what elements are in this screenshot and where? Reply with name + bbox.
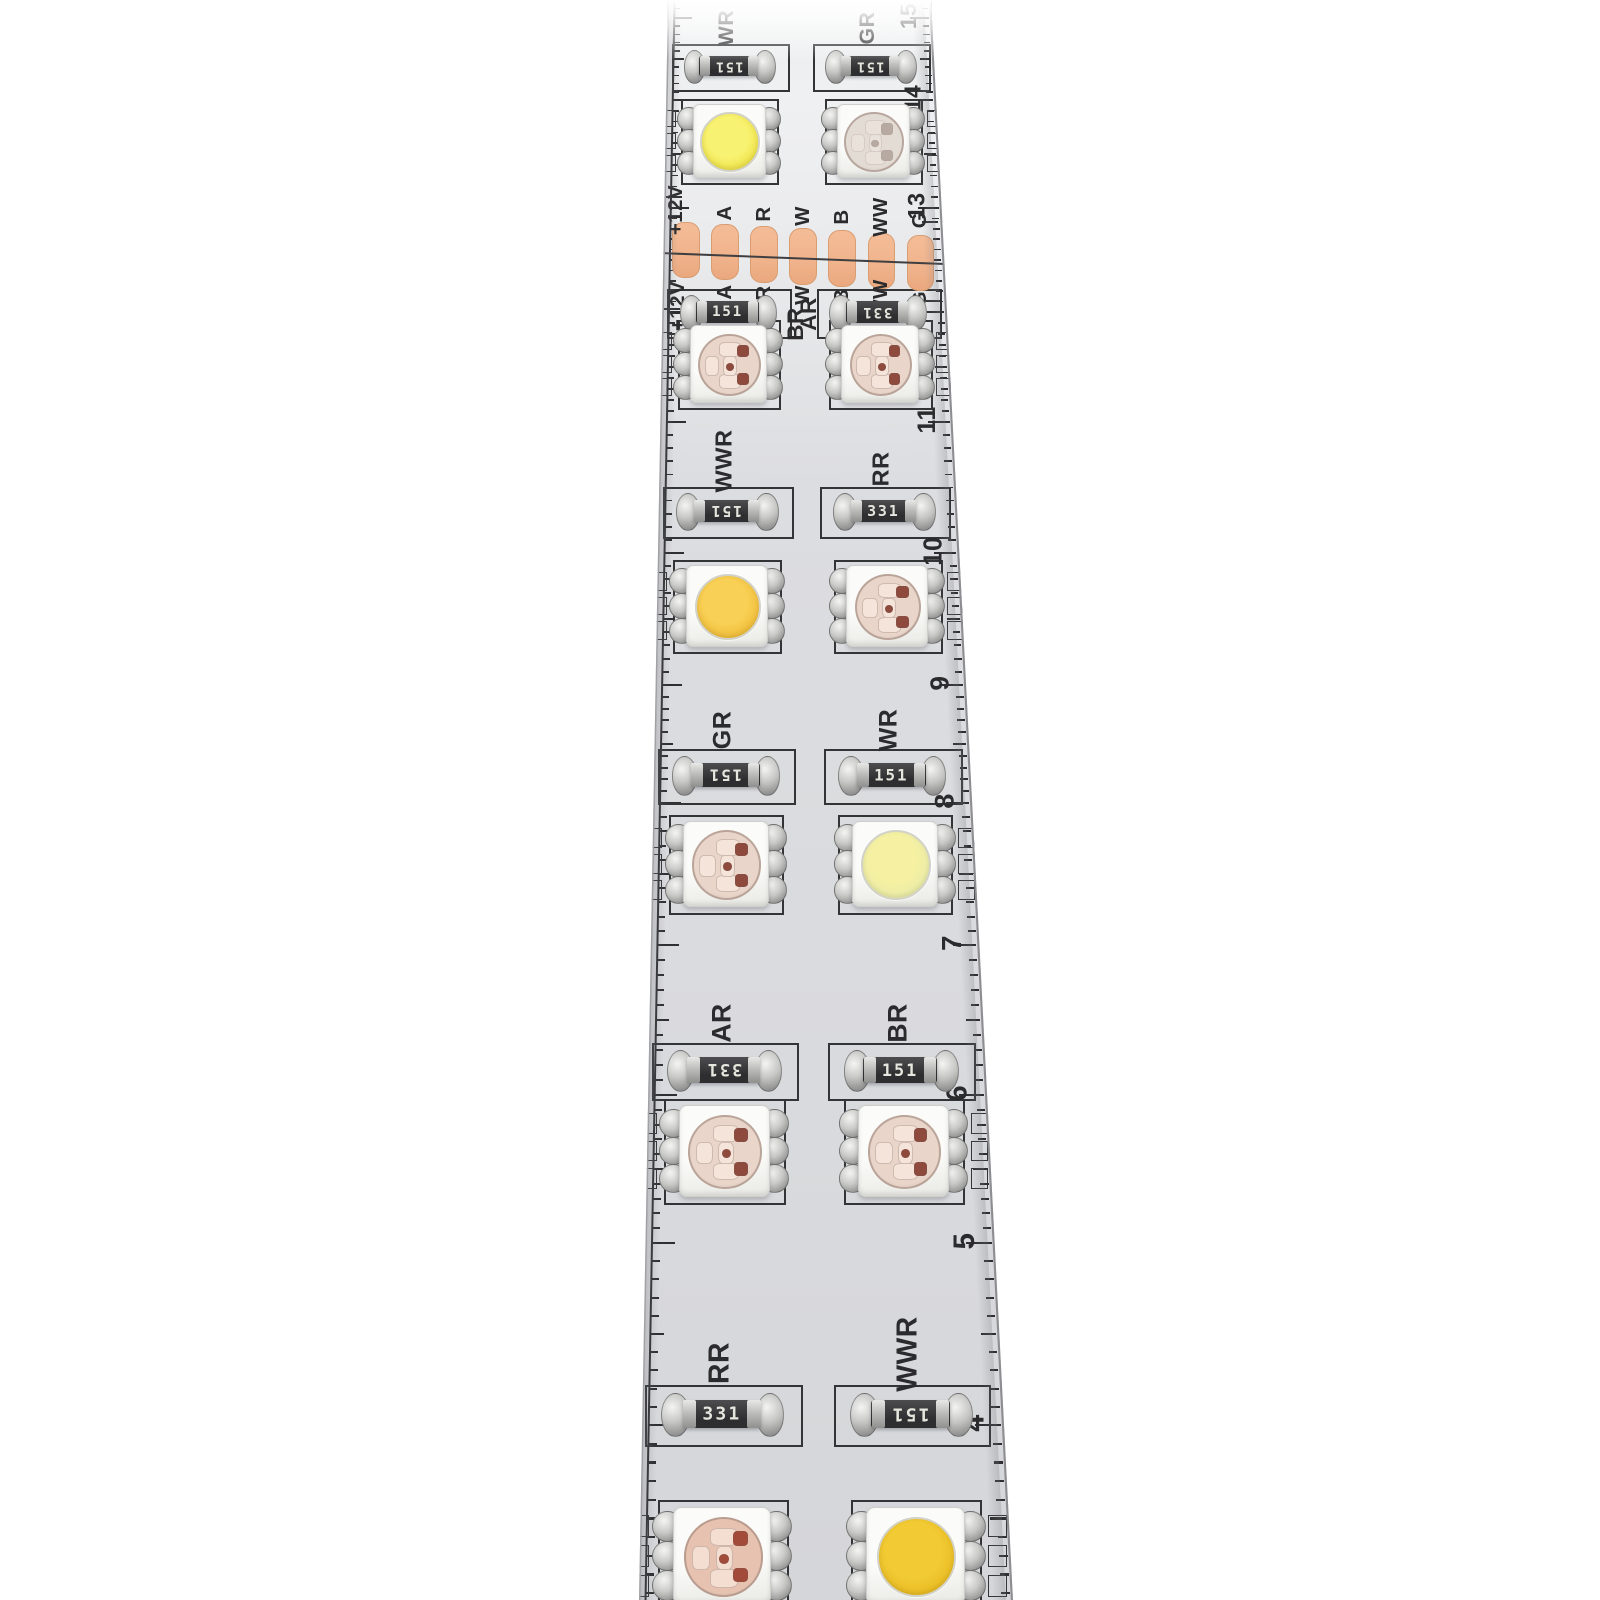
led-lens-clear bbox=[850, 334, 913, 397]
resistor-label: WWR bbox=[892, 1316, 925, 1392]
led-lens-clear bbox=[844, 112, 904, 172]
led-chip-pattern bbox=[700, 336, 759, 395]
resistor-end-cap bbox=[694, 500, 705, 523]
resistor-value: 151 bbox=[855, 59, 884, 74]
led-chip bbox=[692, 1546, 711, 1571]
resistor-end-cap bbox=[748, 763, 760, 787]
resistor-value: 331 bbox=[867, 502, 899, 520]
led-strip-pcb: 1514131110987654151WR151GR+12V+12VAARRWW… bbox=[0, 0, 1600, 1600]
resistor-end-cap bbox=[691, 763, 703, 787]
resistor-end-cap bbox=[936, 1400, 949, 1427]
led-chip bbox=[885, 605, 893, 613]
resistor-end-cap bbox=[898, 301, 909, 323]
led-chip bbox=[851, 134, 865, 153]
resistor-end-cap bbox=[748, 301, 759, 323]
led-chip bbox=[705, 356, 720, 376]
led-lens-clear bbox=[698, 334, 761, 397]
copper-pad bbox=[711, 224, 739, 281]
led-chip bbox=[726, 363, 734, 371]
resistor-value: 151 bbox=[891, 1404, 930, 1425]
resistor-end-cap bbox=[864, 1057, 876, 1083]
led-chip bbox=[733, 1531, 748, 1546]
led-chip-pattern bbox=[857, 576, 919, 638]
resistor-end-cap bbox=[851, 500, 862, 523]
led-chip bbox=[734, 1162, 748, 1176]
led-lens-phosphor bbox=[861, 830, 931, 900]
resistor-value: 331 bbox=[702, 1404, 741, 1425]
led-chip-pattern bbox=[846, 114, 902, 170]
resistor-end-cap bbox=[748, 1057, 760, 1083]
led-chip-pattern bbox=[870, 1117, 940, 1187]
led-lens-clear bbox=[855, 574, 921, 640]
pad-label-bottom: A bbox=[713, 284, 737, 299]
photo-canvas: 1514131110987654151WR151GR+12V+12VAARRWW… bbox=[0, 0, 1600, 1600]
led-chip bbox=[875, 1142, 892, 1165]
resistor-end-cap bbox=[914, 763, 926, 787]
led-lens-phosphor bbox=[695, 574, 761, 640]
resistor-end-cap bbox=[747, 1400, 760, 1427]
led-chip bbox=[719, 1554, 729, 1564]
led-chip bbox=[881, 150, 892, 161]
resistor-label: BR bbox=[883, 1003, 914, 1042]
resistor-end-cap bbox=[857, 763, 869, 787]
led-chip bbox=[737, 373, 749, 385]
led-chip bbox=[914, 1162, 928, 1176]
pad-label-top: R bbox=[752, 206, 776, 221]
resistor-label: RR bbox=[868, 451, 895, 486]
resistor-end-cap bbox=[872, 1400, 885, 1427]
resistor-label: AR bbox=[796, 297, 822, 330]
led-chip bbox=[896, 586, 909, 599]
led-chip bbox=[737, 345, 749, 357]
resistor-end-cap bbox=[847, 301, 858, 323]
resistor-end-cap bbox=[905, 500, 916, 523]
led-chip bbox=[881, 123, 892, 134]
led-lens-clear bbox=[688, 1115, 762, 1189]
led-chip-pattern bbox=[686, 1519, 761, 1594]
led-chip bbox=[896, 616, 909, 629]
resistor-label: AR bbox=[706, 1003, 737, 1042]
resistor-label: WWR bbox=[711, 429, 738, 492]
resistor-value: 151 bbox=[710, 502, 742, 520]
led-chip bbox=[914, 1128, 928, 1142]
resistor-value: 151 bbox=[714, 59, 743, 74]
led-chip bbox=[889, 345, 901, 357]
led-chip bbox=[733, 1568, 748, 1583]
resistor-value: 151 bbox=[712, 304, 743, 320]
pad-label-top: A bbox=[713, 205, 737, 220]
resistor-value: 151 bbox=[708, 766, 742, 785]
resistor-end-cap bbox=[697, 301, 708, 323]
led-chip bbox=[735, 843, 748, 856]
led-chip-pattern bbox=[694, 832, 760, 898]
led-chip bbox=[734, 1128, 748, 1142]
led-chip bbox=[878, 363, 886, 371]
pad-label-top: B bbox=[830, 209, 854, 224]
top-glare bbox=[600, 0, 1050, 60]
led-lens-clear bbox=[868, 1115, 942, 1189]
led-chip bbox=[696, 1142, 713, 1165]
led-chip bbox=[889, 373, 901, 385]
led-chip bbox=[862, 598, 878, 619]
pad-label-top: W bbox=[791, 206, 815, 226]
led-chip bbox=[856, 356, 871, 376]
resistor-value: 151 bbox=[874, 766, 908, 785]
led-lens-clear bbox=[692, 830, 762, 900]
led-chip bbox=[699, 855, 715, 877]
resistor-end-cap bbox=[748, 500, 759, 523]
resistor-label: WR bbox=[875, 709, 904, 752]
resistor-value: 151 bbox=[882, 1060, 918, 1080]
led-chip bbox=[735, 874, 748, 887]
resistor-label: GR bbox=[709, 711, 738, 749]
resistor-value: 331 bbox=[705, 1060, 741, 1080]
led-chip bbox=[722, 1149, 731, 1158]
resistor-value: 331 bbox=[862, 304, 893, 320]
copper-pad bbox=[750, 226, 778, 283]
led-chip-pattern bbox=[852, 336, 911, 395]
resistor-end-cap bbox=[683, 1400, 696, 1427]
led-lens-phosphor bbox=[877, 1517, 956, 1596]
led-chip bbox=[723, 862, 732, 871]
led-lens-clear bbox=[684, 1517, 763, 1596]
resistor-end-cap bbox=[924, 1057, 936, 1083]
pad-label-top: WW bbox=[869, 197, 893, 237]
resistor-end-cap bbox=[687, 1057, 699, 1083]
led-lens-phosphor bbox=[700, 112, 760, 172]
led-chip-pattern bbox=[690, 1117, 760, 1187]
resistor-label: RR bbox=[703, 1342, 736, 1384]
